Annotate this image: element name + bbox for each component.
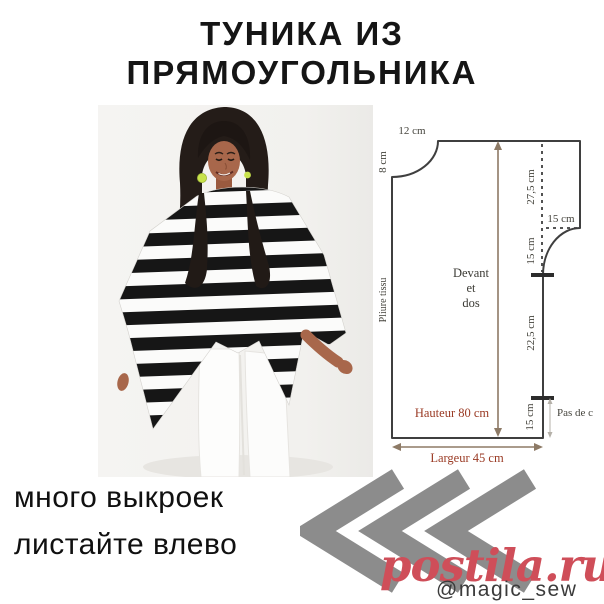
post-title: ТУНИКА ИЗ ПРЯМОУГОЛЬНИКА: [0, 14, 604, 92]
label-height: Hauteur 80 cm: [415, 406, 490, 420]
piece-name-line2: et: [466, 281, 476, 295]
sewing-pattern-diagram: 12 cm 8 cm 27,5 cm 15 cm 15 cm 22,5 cm 1…: [372, 112, 604, 472]
piece-name-line3: dos: [462, 296, 480, 310]
label-side-seam: 22,5 cm: [525, 315, 537, 351]
post-title-line2: ПРЯМОУГОЛЬНИКА: [0, 53, 604, 92]
model-photo: [98, 105, 373, 477]
post-canvas: ТУНИКА ИЗ ПРЯМОУГОЛЬНИКА: [0, 0, 604, 604]
piece-name-line1: Devant: [453, 266, 490, 280]
face: [208, 141, 240, 181]
width-dimension-arrow: [392, 443, 543, 451]
label-slit-note: Pas de c: [557, 407, 593, 419]
label-shoulder-width: 15 cm: [547, 213, 575, 225]
author-handle: @magic_sew: [436, 578, 577, 602]
footer-caption-line1: много выкроек: [14, 474, 237, 521]
post-title-line1: ТУНИКА ИЗ: [0, 14, 604, 53]
slit-dimension-line: [548, 398, 553, 438]
label-neck-width: 12 cm: [398, 125, 426, 137]
model-illustration: [98, 105, 373, 477]
label-armhole: 15 cm: [525, 237, 537, 265]
footer-caption-line2: листайте влево: [14, 521, 237, 568]
label-upper-side: 27,5 cm: [525, 169, 537, 205]
label-fabric-fold: Pliure tissu: [378, 278, 389, 323]
pattern-outline: [392, 141, 580, 438]
label-slit: 15 cm: [524, 403, 536, 431]
footer-caption: много выкроек листайте влево: [14, 474, 237, 568]
label-neck-depth: 8 cm: [377, 151, 389, 173]
